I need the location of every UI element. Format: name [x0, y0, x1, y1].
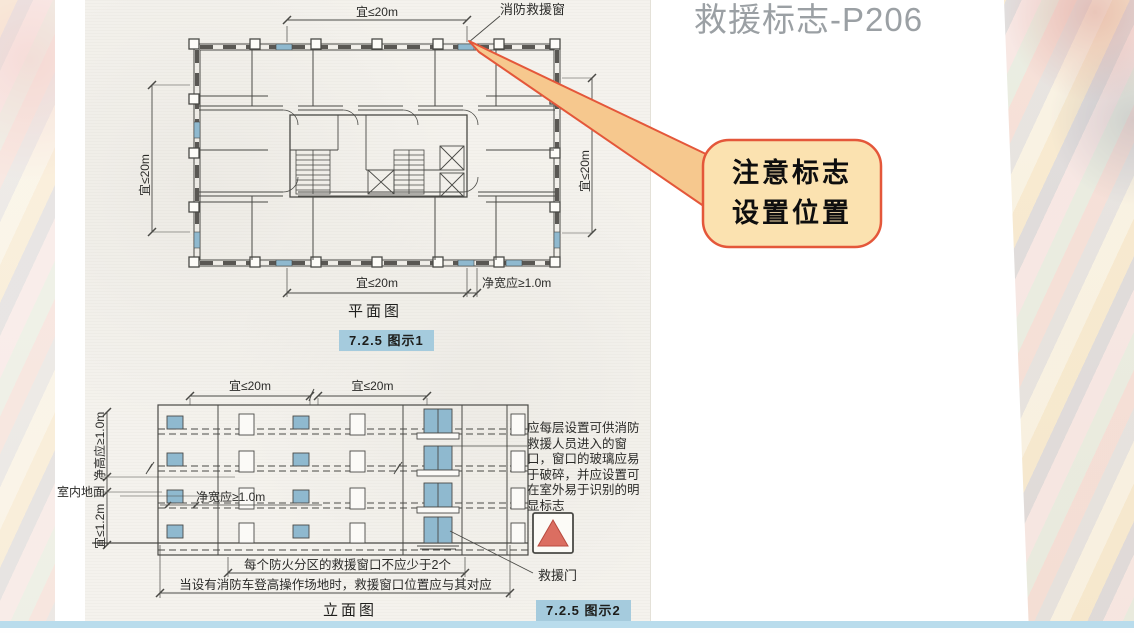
plan-figure-badge: 7.2.5 图示1 — [339, 330, 434, 351]
callout-text: 注意标志 设置位置 — [710, 153, 874, 233]
bottom-accent-bar — [0, 621, 1134, 628]
plan-caption: 平面图 — [330, 303, 420, 321]
elev-note-text: 应每层设置可供消防救援人员进入的窗口，窗口的玻璃应易于破碎，并应设置可在室外易于… — [527, 421, 649, 514]
callout-line-1: 注意标志 — [710, 153, 874, 193]
elev-indoor-floor-label: 室内地面 — [57, 485, 105, 500]
elev-rule-compartment: 每个防火分区的救援窗口不应少于2个 — [225, 559, 470, 573]
slide-page: 宜≤20m 消防救援窗 宜≤20m 宜≤20m 宜≤20m 净宽应≥1.0m 平… — [0, 0, 1134, 633]
plan-dim-left-label: 宜≤20m — [138, 154, 152, 196]
elevation-caption: 立面图 — [305, 602, 395, 620]
elev-sill-height-label: 宜≤1.2m — [93, 504, 107, 549]
plan-clear-width-label: 净宽应≥1.0m — [482, 276, 551, 291]
plan-dim-right-label: 宜≤20m — [578, 150, 592, 192]
slide-title: 救援标志-P206 — [694, 2, 923, 38]
elev-clear-height-label: 净高应≥1.0m — [93, 412, 107, 481]
elev-dim-top-left-label: 宜≤20m — [190, 379, 310, 394]
bottom-white-strip — [0, 628, 1134, 633]
elev-clear-width-label: 净宽应≥1.0m — [196, 490, 265, 505]
elevation-figure-badge: 7.2.5 图示2 — [536, 600, 631, 621]
plan-dim-bottom-label: 宜≤20m — [287, 276, 467, 291]
elev-rule-ladder: 当设有消防车登高操作场地时，救援窗口位置应与其对应 — [158, 579, 513, 593]
elev-rescue-door-label: 救援门 — [538, 568, 577, 584]
plan-dim-top-label: 宜≤20m — [287, 5, 467, 20]
background-wash-left — [0, 0, 62, 633]
elev-dim-top-right-label: 宜≤20m — [315, 379, 430, 394]
plan-rescue-window-label: 消防救援窗 — [500, 2, 565, 18]
callout-line-2: 设置位置 — [710, 193, 874, 233]
